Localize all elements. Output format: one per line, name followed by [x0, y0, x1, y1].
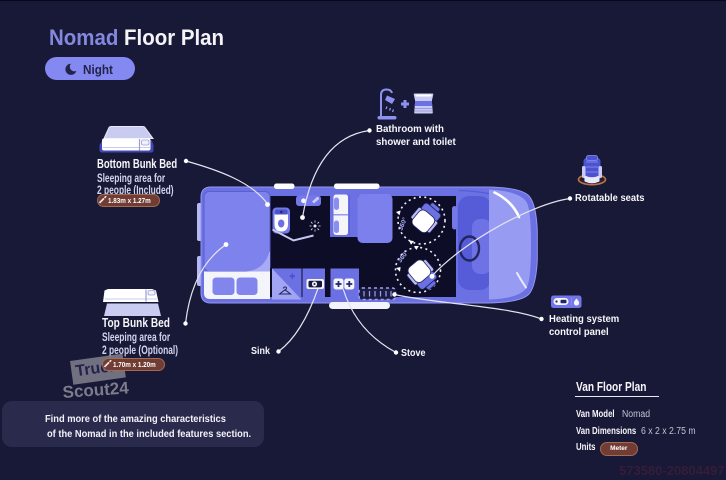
- svg-text:360°: 360°: [396, 216, 409, 232]
- svg-text:360°: 360°: [396, 248, 411, 264]
